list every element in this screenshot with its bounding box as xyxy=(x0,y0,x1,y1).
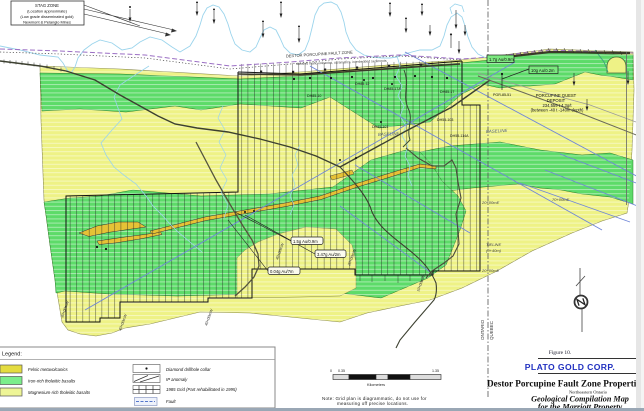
svg-text:DESTOR PORCUPINE FAULT ZONE: DESTOR PORCUPINE FAULT ZONE xyxy=(286,49,353,58)
svg-text:Figure 10.: Figure 10. xyxy=(549,350,572,356)
svg-text:STAG ZONE: STAG ZONE xyxy=(35,3,59,8)
svg-text:20+00mE: 20+00mE xyxy=(481,200,500,205)
svg-text:1985 Grid (Part rehabilitat: 1985 Grid (Part rehabilitated in 1995) xyxy=(166,387,237,392)
svg-text:Destor Porcupine Fault Zone Pr: Destor Porcupine Fault Zone Properties xyxy=(487,379,644,390)
svg-text:(Low grade disseminated gold): (Low grade disseminated gold) xyxy=(20,14,74,19)
svg-text:Kilometers: Kilometers xyxy=(367,383,385,387)
svg-text:70+00mE: 70+00mE xyxy=(552,197,570,202)
svg-text:10g Au/0.2m: 10g Au/0.2m xyxy=(531,68,555,73)
svg-text:IP anomaly: IP anomaly xyxy=(166,377,188,382)
svg-text:ONTARIO: ONTARIO xyxy=(480,319,485,340)
svg-text:Iron-rich tholeiitic basalts: Iron-rich tholeiitic basalts xyxy=(28,379,76,384)
svg-text:TIELINE: TIELINE xyxy=(486,242,501,247)
svg-text:DH85-17: DH85-17 xyxy=(440,90,454,94)
svg-text:DH85-17A: DH85-17A xyxy=(384,87,401,91)
svg-text:(0+40m): (0+40m) xyxy=(486,248,502,253)
svg-text:QUEBEC: QUEBEC xyxy=(489,320,494,340)
svg-text:PGR-85-51: PGR-85-51 xyxy=(493,93,511,97)
svg-text:(Location approximate): (Location approximate) xyxy=(27,9,67,14)
svg-text:Newmont & Pelangio Mines: Newmont & Pelangio Mines xyxy=(23,20,71,25)
svg-text:Magnesium-rich tholeiitic ba: Magnesium-rich tholeiitic basalts xyxy=(28,390,91,395)
svg-text:20+00mE: 20+00mE xyxy=(481,268,500,273)
svg-text:Fault: Fault xyxy=(166,399,176,404)
svg-text:DH55-103: DH55-103 xyxy=(437,118,453,122)
svg-text:(between -40 t -140m depth): (between -40 t -140m depth) xyxy=(531,108,584,113)
svg-text:Felsic metavolcanics: Felsic metavolcanics xyxy=(28,367,68,372)
svg-text:0.04g Au/7m: 0.04g Au/7m xyxy=(270,269,294,274)
svg-text:1.7g Au/0.9m: 1.7g Au/0.9m xyxy=(489,57,514,62)
svg-text:DH85-12: DH85-12 xyxy=(355,82,369,86)
svg-text:Diamond drillhole collar: Diamond drillhole collar xyxy=(166,367,211,372)
svg-text:measuring off precise location: measuring off precise locations. xyxy=(337,401,408,406)
svg-text:1.35: 1.35 xyxy=(432,369,439,373)
svg-text:0.35: 0.35 xyxy=(338,369,345,373)
svg-text:PLATO GOLD CORP.: PLATO GOLD CORP. xyxy=(525,362,615,372)
svg-text:0: 0 xyxy=(330,369,332,373)
svg-text:3.47g Au/2m: 3.47g Au/2m xyxy=(317,252,341,257)
svg-text:1.5g Au/0.9m: 1.5g Au/0.9m xyxy=(293,239,318,244)
svg-text:DH85-10: DH85-10 xyxy=(307,94,321,98)
svg-text:DH55-114A: DH55-114A xyxy=(450,134,469,138)
svg-text:DH85-107: DH85-107 xyxy=(372,125,388,129)
svg-text:Legend:: Legend: xyxy=(2,352,22,358)
